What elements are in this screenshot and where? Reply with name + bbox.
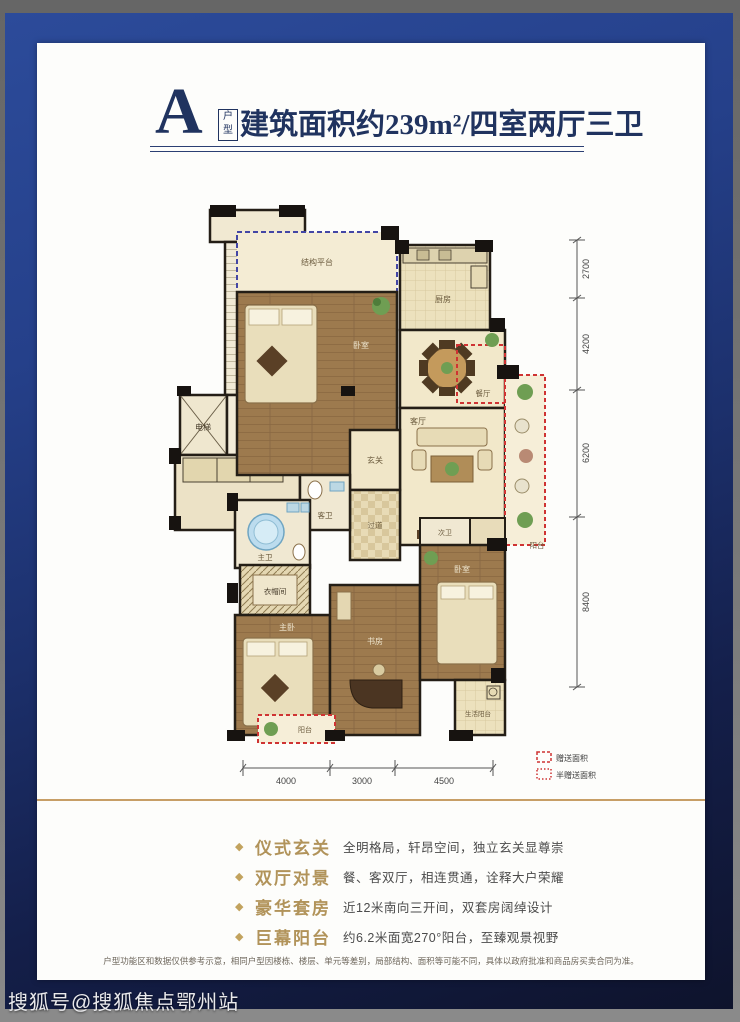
floorplan-card: A 户 型 建筑面积约239m²/四室两厅三卫 xyxy=(37,43,705,980)
feature-row: ◆ 豪华套房 近12米南向三开间，双套房阔绰设计 xyxy=(235,891,675,921)
room-hallway: 过道 xyxy=(350,490,400,560)
page-title: 建筑面积约239m²/四室两厅三卫 xyxy=(240,101,660,143)
room-platform: 结构平台 xyxy=(237,232,397,292)
floor-plan-area: 电梯 电梯 上 下 结构平台 卧室 xyxy=(165,200,630,790)
unit-type-letter: A xyxy=(155,79,203,145)
room-label: 客卫 xyxy=(318,510,333,520)
room-label: 厨房 xyxy=(435,294,451,304)
feature-title: 豪华套房 xyxy=(255,894,343,919)
room-label: 主卫 xyxy=(258,552,273,562)
room-closet: 衣帽间 xyxy=(240,565,310,615)
feature-row: ◆ 巨幕阳台 约6.2米面宽270°阳台，至臻观景视野 xyxy=(235,921,675,951)
unit-type-label-box: 户 型 xyxy=(218,109,238,141)
feature-row: ◆ 双厅对景 餐、客双厅，相连贯通，诠释大户荣耀 xyxy=(235,861,675,891)
room-label: 阳台 xyxy=(530,540,545,550)
watermark-text: 搜狐号@搜狐焦点鄂州站 xyxy=(8,986,239,1015)
diamond-bullet-icon: ◆ xyxy=(235,870,255,883)
unit-type-char-top: 户 xyxy=(219,110,237,124)
room-balcony: 阳台 xyxy=(505,375,545,550)
plan-legend: 赠送面积 半赠送面积 xyxy=(537,752,596,780)
feature-desc: 约6.2米面宽270°阳台，至臻观景视野 xyxy=(343,927,559,946)
feature-title: 仪式玄关 xyxy=(255,834,343,859)
room-kitchen: 厨房 xyxy=(400,245,490,330)
room-label: 玄关 xyxy=(367,455,383,465)
dim-label: 4200 xyxy=(581,334,591,354)
diamond-bullet-icon: ◆ xyxy=(235,930,255,943)
room-label: 衣帽间 xyxy=(264,586,287,596)
diamond-bullet-icon: ◆ xyxy=(235,900,255,913)
room-balcony-small: 阳台 xyxy=(258,715,335,743)
title-double-rule xyxy=(150,146,584,152)
room-label: 餐厅 xyxy=(476,389,491,398)
feature-desc: 近12米南向三开间，双套房阔绰设计 xyxy=(343,897,553,916)
gold-divider xyxy=(37,799,705,801)
room-foyer: 玄关 xyxy=(350,430,400,490)
room-bedroom-se: 卧室 xyxy=(420,545,505,680)
feature-title: 巨幕阳台 xyxy=(255,924,343,949)
room-label: 电梯 xyxy=(195,422,211,432)
floor-plan-svg: 电梯 电梯 上 下 结构平台 卧室 xyxy=(165,200,630,790)
dim-label: 4000 xyxy=(276,776,296,786)
room-life-balcony: 生活阳台 xyxy=(455,680,505,735)
room-label: 次卫 xyxy=(438,528,452,537)
dim-label: 8400 xyxy=(581,592,591,612)
disclaimer-text: 户型功能区和数据仅供参考示意，相同户型因楼栋、楼层、单元等差别，局部结构、面积等… xyxy=(51,955,691,967)
dimension-right: 2700 4200 6200 8400 xyxy=(569,237,591,690)
room-master-bath: 主卫 xyxy=(235,500,310,568)
legend-label-full: 赠送面积 xyxy=(556,753,588,763)
feature-row: ◆ 仪式玄关 全明格局，轩昂空间，独立玄关显尊崇 xyxy=(235,831,675,861)
room-dining: 餐厅 xyxy=(400,330,505,408)
room-study: 书房 xyxy=(330,585,420,735)
dim-label: 2700 xyxy=(581,259,591,279)
feature-desc: 全明格局，轩昂空间，独立玄关显尊崇 xyxy=(343,837,564,856)
legend-label-half: 半赠送面积 xyxy=(556,770,596,780)
room-label: 生活阳台 xyxy=(465,709,491,718)
dim-label: 3000 xyxy=(352,776,372,786)
room-label: 结构平台 xyxy=(301,257,333,267)
unit-type-char-bottom: 型 xyxy=(219,124,237,138)
dim-label: 6200 xyxy=(581,443,591,463)
room-label: 阳台 xyxy=(298,725,312,734)
room-label: 过道 xyxy=(368,520,383,530)
room-label: 主卧 xyxy=(279,622,295,632)
feature-title: 双厅对景 xyxy=(255,864,343,889)
feature-list: ◆ 仪式玄关 全明格局，轩昂空间，独立玄关显尊崇 ◆ 双厅对景 餐、客双厅，相连… xyxy=(235,831,675,951)
room-label: 书房 xyxy=(367,636,383,646)
room-label: 卧室 xyxy=(454,564,470,574)
room-label: 客厅 xyxy=(410,416,426,426)
feature-desc: 餐、客双厅，相连贯通，诠释大户荣耀 xyxy=(343,867,564,886)
dimension-bottom: 4000 3000 4500 xyxy=(240,760,496,786)
room-label: 卧室 xyxy=(353,340,369,350)
dim-label: 4500 xyxy=(434,776,454,786)
diamond-bullet-icon: ◆ xyxy=(235,840,255,853)
